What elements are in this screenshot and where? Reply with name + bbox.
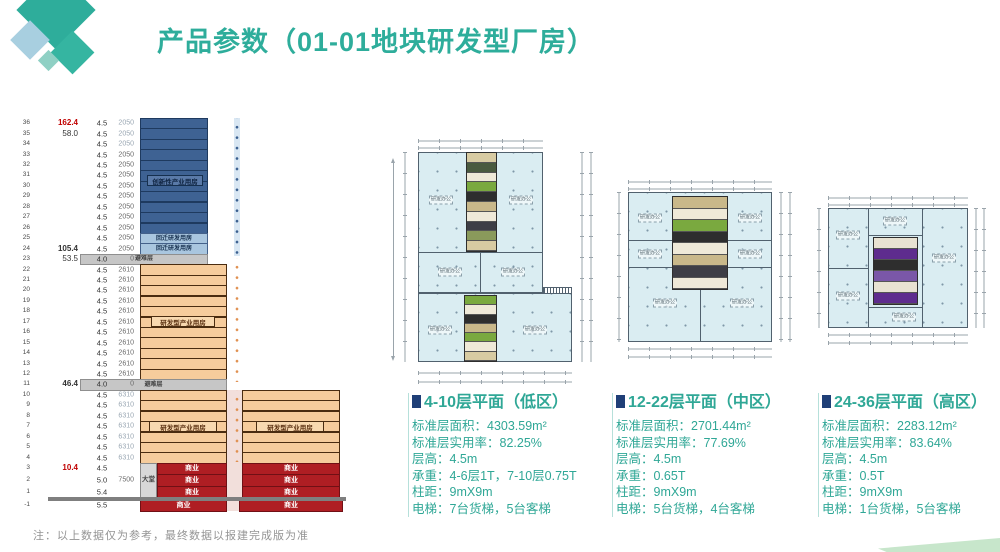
room-label: 研发办公 [509,196,533,205]
core-cell [465,342,496,351]
room-label: 研发办公 [738,250,762,259]
core-cell [467,163,496,173]
core-cell [467,153,496,163]
room-label: 研发办公 [429,196,453,205]
spec-line: 柱距：9mX9m [616,484,816,501]
core-cell [673,232,727,244]
dimension-line [628,347,772,351]
core-cell [467,222,496,232]
spec-line: 电梯：7台货梯，5台客梯 [412,501,612,518]
room-label: 研发办公 [892,313,916,322]
plan-core [464,295,497,362]
dimension-line [828,341,968,345]
core-cell [874,293,917,304]
spec-line: 电梯：5台货梯，4台客梯 [616,501,816,518]
dim-arrow [391,356,395,361]
core-cell [874,271,917,282]
core-cell [467,241,496,251]
core-cell [874,282,917,293]
spec-line: 标准层面积：2701.44m² [616,418,816,435]
room-label: 研发办公 [638,250,662,259]
plan-specs: 标准层面积：2283.12m²标准层实用率：83.64%层高：4.5m承重：0.… [822,418,1000,517]
dimension-line [628,180,772,184]
dimension-line [974,208,978,328]
plan-specs: 标准层面积：2701.44m²标准层实用率：77.69%层高：4.5m承重：0.… [616,418,816,517]
slide-canvas: 产品参数（01-01地块研发型厂房） 36162.44.520503558.04… [0,0,1000,552]
plan2-wall [628,240,672,241]
plan-specs: 标准层面积：4303.59m²标准层实用率：82.25%层高：4.5m承重：4-… [412,418,612,517]
core-cell [673,266,727,278]
core-cell [465,324,496,333]
plan1-wall [480,252,481,293]
floor-plans: 研发办公研发办公研发办公研发办公研发办公研发办公研发办公研发办公研发办公研发办公… [0,0,1000,552]
core-cell [673,220,727,232]
title-bullet-icon [822,395,831,408]
dimension-line [828,333,968,337]
dimension-line [817,208,821,328]
core-cell [465,333,496,342]
dim-arrow [391,158,395,163]
core-cell [465,352,496,361]
plan3-wall [922,208,923,328]
core-cell [673,278,727,290]
dimension-line [628,355,772,359]
plan3-wall [868,235,922,236]
plan-core [873,237,918,305]
core-cell [465,305,496,314]
plan-title: 24-36层平面（高区） [822,393,1000,413]
spec-line: 承重：0.65T [616,468,816,485]
room-label: 研发办公 [836,292,860,301]
dimension-line [580,152,584,362]
spec-line: 层高：4.5m [822,451,1000,468]
core-cell [467,173,496,183]
room-label: 研发办公 [883,217,907,226]
core-cell [874,260,917,271]
overall-dim-line [393,162,394,356]
spec-line: 标准层实用率：77.69% [616,435,816,452]
room-label: 研发办公 [730,299,754,308]
spec-line: 柱距：9mX9m [412,484,612,501]
core-cell [673,197,727,209]
dimension-line [982,208,986,328]
core-cell [465,296,496,305]
core-cell [673,243,727,255]
room-label: 研发办公 [438,268,462,277]
plan-caption: 12-22层平面（中区）标准层面积：2701.44m²标准层实用率：77.69%… [612,393,816,517]
dimension-line [779,192,783,342]
core-cell [467,182,496,192]
core-cell [467,202,496,212]
spec-line: 标准层实用率：83.64% [822,435,1000,452]
core-cell [673,255,727,267]
title-bullet-icon [616,395,625,408]
dimension-line [403,152,407,362]
core-cell [467,192,496,202]
spec-line: 层高：4.5m [616,451,816,468]
dimension-line [418,139,543,143]
spec-line: 柱距：9mX9m [822,484,1000,501]
dimension-line [828,196,968,200]
spec-line: 标准层面积：4303.59m² [412,418,612,435]
core-cell [467,231,496,241]
dimension-line [828,203,968,207]
room-label: 研发办公 [932,254,956,263]
dimension-line [418,380,572,384]
plan3-wall [868,307,922,308]
plan2-wall [728,240,772,241]
room-label: 研发办公 [501,268,525,277]
plan-caption: 4-10层平面（低区）标准层面积：4303.59m²标准层实用率：82.25%层… [408,393,612,517]
room-label: 研发办公 [738,214,762,223]
plan-title: 12-22层平面（中区） [616,393,816,413]
dimension-line [589,152,593,362]
plan-caption: 24-36层平面（高区）标准层面积：2283.12m²标准层实用率：83.64%… [818,393,1000,517]
spec-line: 标准层实用率：82.25% [412,435,612,452]
core-cell [874,249,917,260]
plan-core [466,152,497,252]
room-label: 研发办公 [638,214,662,223]
core-cell [467,212,496,222]
room-label: 研发办公 [428,326,452,335]
plan3-wall [868,208,869,328]
room-label: 研发办公 [836,231,860,240]
footnote: 注：以上数据仅为参考，最终数据以报建完成版为准 [33,527,309,543]
spec-line: 标准层面积：2283.12m² [822,418,1000,435]
spec-line: 电梯：1台货梯，5台客梯 [822,501,1000,518]
dimension-line [418,146,543,150]
plan3-wall [828,268,868,269]
dimension-line [617,192,621,342]
core-cell [465,315,496,324]
spec-line: 承重：0.5T [822,468,1000,485]
dimension-line [788,192,792,342]
spec-line: 层高：4.5m [412,451,612,468]
room-label: 研发办公 [653,299,677,308]
dimension-line [418,371,572,375]
core-cell [874,238,917,249]
plan-title: 4-10层平面（低区） [412,393,612,413]
spec-line: 承重：4-6层1T，7-10层0.75T [412,468,612,485]
room-label: 研发办公 [523,326,547,335]
plan-core [672,196,728,290]
title-bullet-icon [412,395,421,408]
plan1-notch [543,287,572,294]
dimension-line [628,187,772,191]
core-cell [673,209,727,221]
